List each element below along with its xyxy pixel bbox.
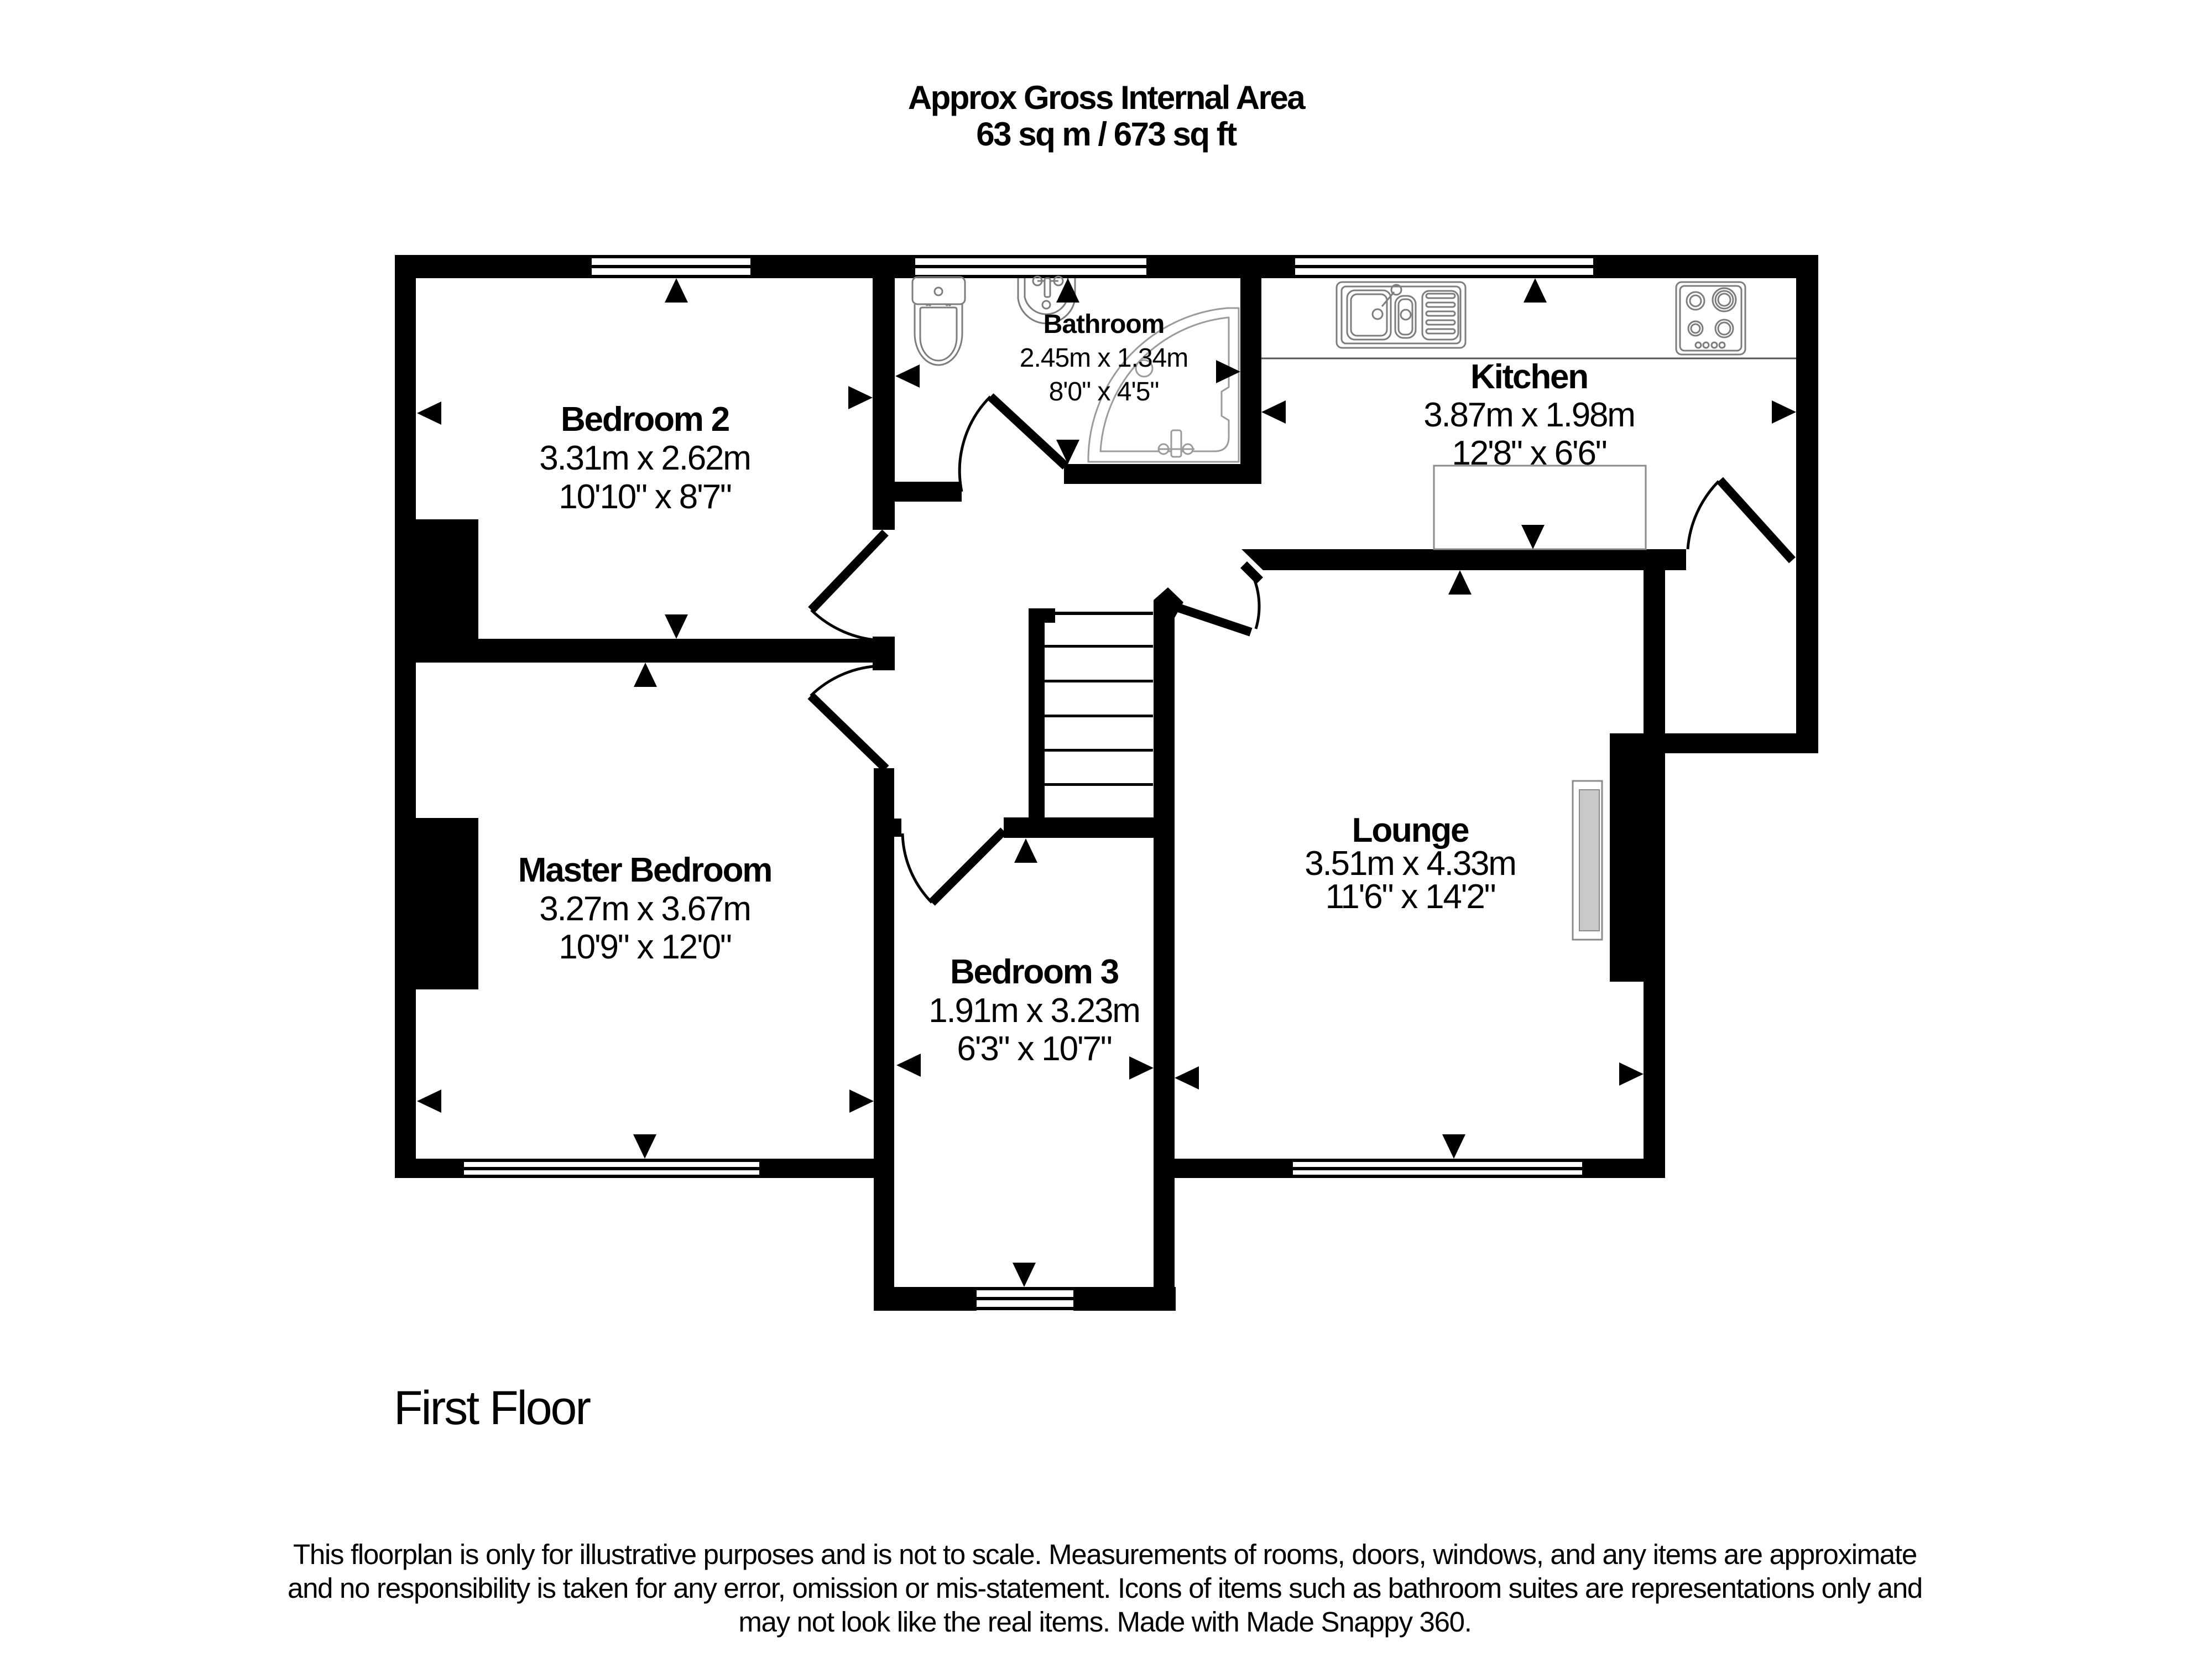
svg-text:6'3" x 10'7": 6'3" x 10'7" [957,1030,1111,1068]
svg-text:10'9" x 12'0": 10'9" x 12'0" [559,928,731,966]
svg-text:3.27m x 3.67m: 3.27m x 3.67m [539,890,750,928]
svg-text:Approx Gross Internal Area: Approx Gross Internal Area [908,79,1306,116]
svg-text:12'8" x 6'6": 12'8" x 6'6" [1452,434,1606,472]
svg-text:2.45m x 1.34m: 2.45m x 1.34m [1020,343,1188,373]
svg-text:1.91m x 3.23m: 1.91m x 3.23m [928,992,1139,1030]
svg-text:Lounge: Lounge [1352,811,1469,849]
svg-text:This floorplan is only for ill: This floorplan is only for illustrative … [293,1539,1917,1570]
svg-text:10'10" x 8'7": 10'10" x 8'7" [559,478,731,516]
svg-text:8'0" x 4'5": 8'0" x 4'5" [1049,377,1159,406]
svg-text:Bedroom 3: Bedroom 3 [950,953,1119,991]
svg-text:63 sq m / 673 sq ft: 63 sq m / 673 sq ft [976,116,1237,153]
svg-text:3.31m x 2.62m: 3.31m x 2.62m [539,439,750,477]
svg-text:Bathroom: Bathroom [1044,310,1165,339]
svg-text:may not look like the real ite: may not look like the real items. Made w… [738,1606,1471,1638]
svg-text:11'6" x 14'2": 11'6" x 14'2" [1326,878,1495,916]
svg-text:3.87m x 1.98m: 3.87m x 1.98m [1423,396,1634,434]
svg-text:Master Bedroom: Master Bedroom [518,851,771,889]
svg-text:Bedroom 2: Bedroom 2 [561,400,729,439]
svg-text:3.51m x 4.33m: 3.51m x 4.33m [1305,845,1515,883]
svg-text:First Floor: First Floor [394,1382,591,1435]
svg-text:Kitchen: Kitchen [1470,358,1588,396]
svg-text:and no responsibility is taken: and no responsibility is taken for any e… [288,1572,1922,1604]
